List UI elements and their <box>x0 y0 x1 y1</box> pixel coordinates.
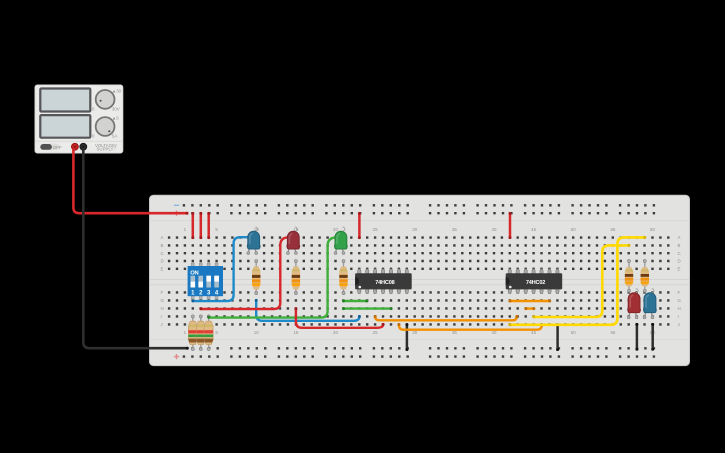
svg-text:50: 50 <box>571 227 576 232</box>
svg-text:E: E <box>678 266 681 271</box>
svg-text:H: H <box>161 306 164 311</box>
svg-text:10: 10 <box>254 330 259 335</box>
svg-text:B: B <box>678 243 681 248</box>
svg-text:F: F <box>161 290 164 295</box>
svg-text:25: 25 <box>373 227 378 232</box>
svg-text:F: F <box>678 290 681 295</box>
svg-text:B: B <box>161 243 164 248</box>
svg-text:55: 55 <box>610 227 615 232</box>
svg-text:ON: ON <box>190 270 198 276</box>
svg-text:35: 35 <box>452 227 457 232</box>
svg-text:I: I <box>678 314 679 319</box>
svg-text:D: D <box>161 259 164 264</box>
svg-text:H: H <box>678 306 681 311</box>
svg-text:45: 45 <box>531 227 536 232</box>
svg-text:OFF: OFF <box>53 145 62 150</box>
svg-text:30V: 30V <box>112 107 120 112</box>
svg-text:I: I <box>161 314 162 319</box>
svg-text:▲30: ▲30 <box>112 89 122 94</box>
svg-text:G: G <box>678 298 682 303</box>
svg-text:60: 60 <box>650 227 655 232</box>
svg-text:74HC08: 74HC08 <box>375 280 394 286</box>
svg-text:74HC02: 74HC02 <box>526 280 545 286</box>
svg-text:25: 25 <box>373 330 378 335</box>
svg-text:A: A <box>161 235 164 240</box>
svg-text:E: E <box>161 266 164 271</box>
svg-text:▲5: ▲5 <box>112 116 119 121</box>
svg-text:20: 20 <box>333 330 338 335</box>
svg-text:30: 30 <box>412 227 417 232</box>
svg-text:55: 55 <box>610 330 615 335</box>
svg-text:A: A <box>678 235 681 240</box>
svg-text:G: G <box>161 298 165 303</box>
svg-text:15: 15 <box>293 330 298 335</box>
svg-text:J: J <box>161 322 163 327</box>
svg-text:20: 20 <box>333 227 338 232</box>
svg-text:C: C <box>678 251 681 256</box>
svg-text:50: 50 <box>571 330 576 335</box>
svg-text:40: 40 <box>492 227 497 232</box>
svg-text:D: D <box>678 259 681 264</box>
svg-text:SUPPLY: SUPPLY <box>96 147 113 152</box>
svg-text:C: C <box>161 251 164 256</box>
svg-text:J: J <box>678 322 680 327</box>
svg-text:5A: 5A <box>112 134 117 139</box>
